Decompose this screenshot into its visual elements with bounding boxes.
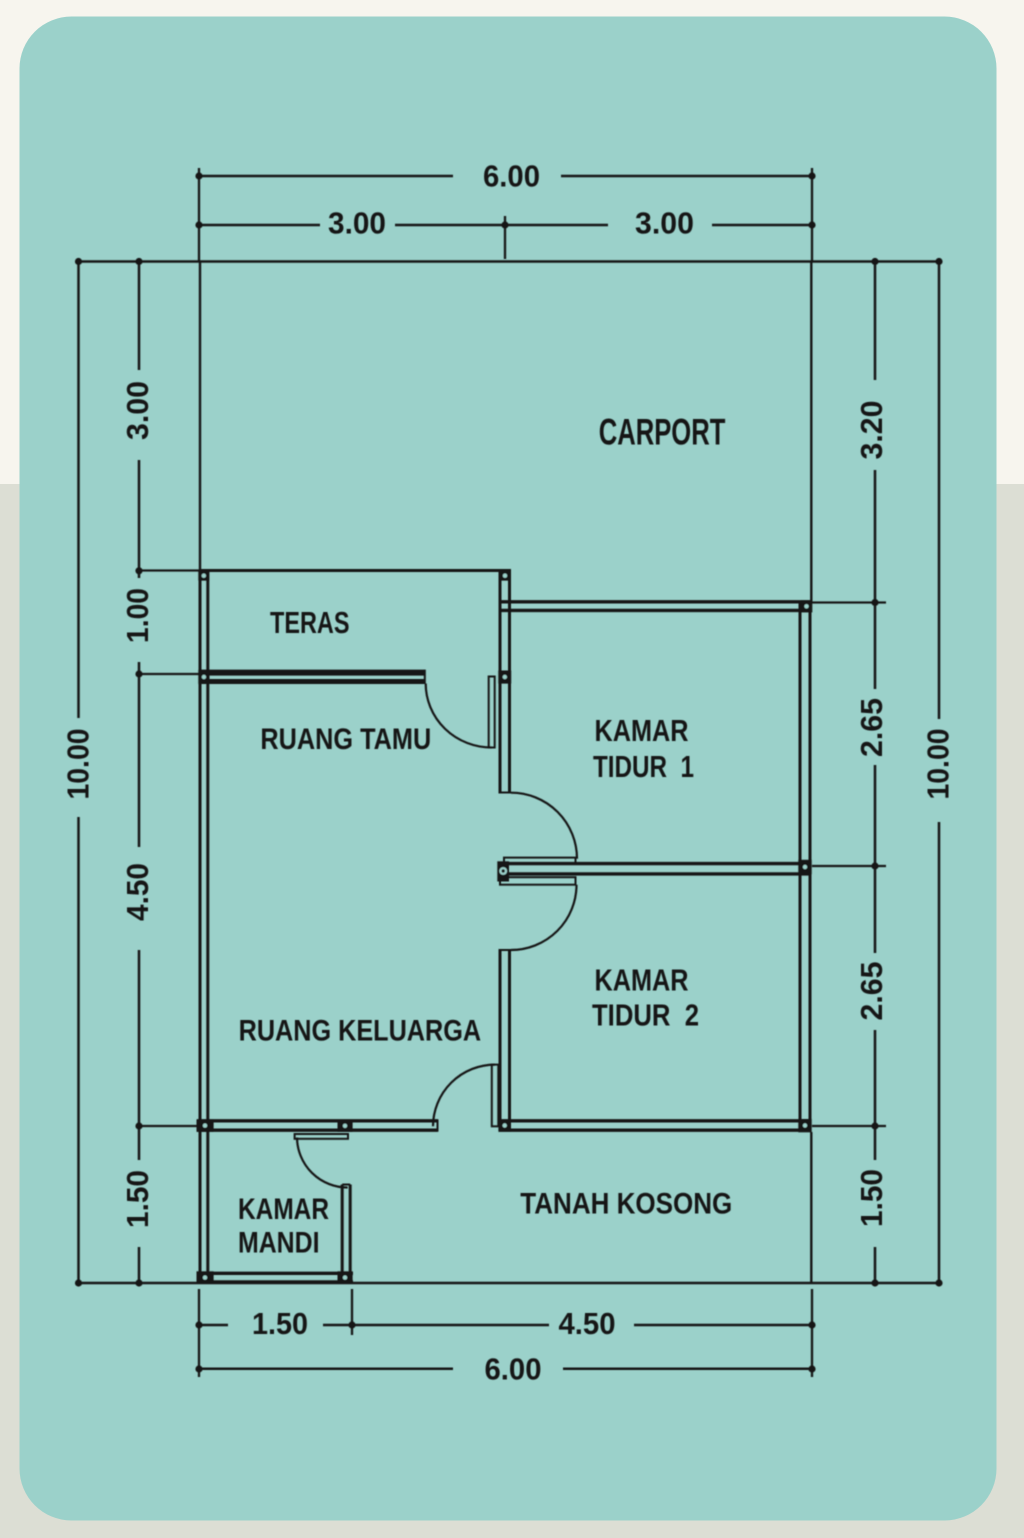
svg-text:4.50: 4.50 bbox=[559, 1306, 616, 1341]
svg-text:2.65: 2.65 bbox=[854, 962, 889, 1021]
svg-text:TIDUR 2: TIDUR 2 bbox=[592, 998, 699, 1033]
svg-text:3.00: 3.00 bbox=[328, 206, 386, 241]
svg-text:1.50: 1.50 bbox=[120, 1170, 155, 1228]
svg-text:10.00: 10.00 bbox=[921, 729, 956, 800]
svg-text:3.00: 3.00 bbox=[120, 381, 155, 440]
svg-text:6.00: 6.00 bbox=[483, 158, 540, 193]
svg-text:6.00: 6.00 bbox=[485, 1352, 542, 1387]
svg-text:TERAS: TERAS bbox=[270, 605, 350, 640]
svg-text:3.20: 3.20 bbox=[854, 401, 889, 460]
svg-text:2.65: 2.65 bbox=[854, 698, 889, 757]
svg-text:MANDI: MANDI bbox=[238, 1226, 320, 1259]
svg-text:RUANG TAMU: RUANG TAMU bbox=[260, 723, 431, 756]
svg-text:3.00: 3.00 bbox=[635, 206, 694, 241]
svg-text:KAMAR: KAMAR bbox=[595, 713, 689, 748]
svg-text:1.50: 1.50 bbox=[854, 1169, 889, 1227]
svg-text:10.00: 10.00 bbox=[61, 729, 96, 800]
svg-text:KAMAR: KAMAR bbox=[595, 963, 689, 998]
svg-text:TANAH KOSONG: TANAH KOSONG bbox=[520, 1188, 732, 1221]
svg-text:KAMAR: KAMAR bbox=[238, 1193, 329, 1226]
svg-text:1.00: 1.00 bbox=[120, 588, 155, 643]
svg-text:CARPORT: CARPORT bbox=[599, 412, 726, 453]
svg-text:4.50: 4.50 bbox=[120, 863, 155, 921]
svg-text:RUANG KELUARGA: RUANG KELUARGA bbox=[239, 1015, 482, 1048]
svg-text:TIDUR 1: TIDUR 1 bbox=[593, 749, 694, 784]
svg-text:1.50: 1.50 bbox=[252, 1306, 308, 1341]
